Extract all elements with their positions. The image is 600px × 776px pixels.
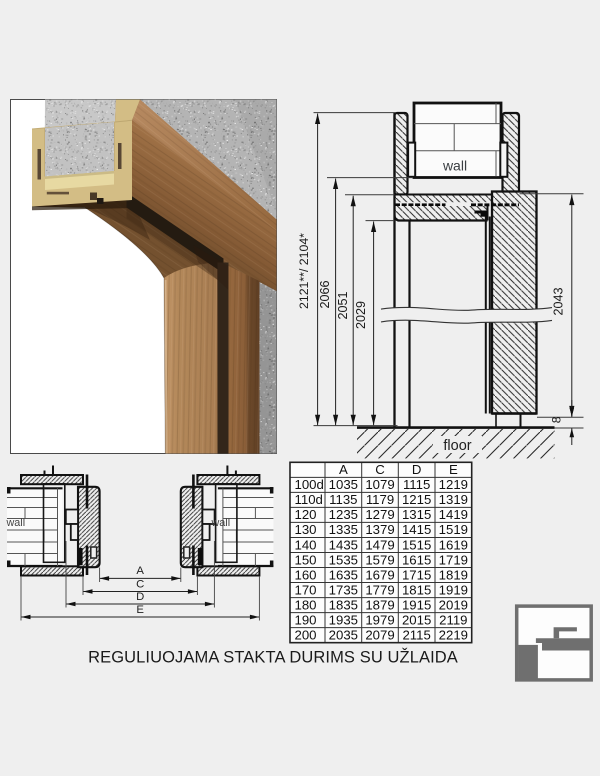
svg-text:1035: 1035 xyxy=(329,477,358,492)
svg-text:170: 170 xyxy=(295,582,317,597)
svg-text:120: 120 xyxy=(295,507,317,522)
svg-text:1735: 1735 xyxy=(329,582,358,597)
svg-text:180: 180 xyxy=(295,597,317,612)
svg-text:1835: 1835 xyxy=(329,597,358,612)
svg-text:2121**/ 2104*: 2121**/ 2104* xyxy=(297,233,311,309)
svg-text:D: D xyxy=(412,462,422,477)
svg-text:1779: 1779 xyxy=(365,582,394,597)
svg-text:2015: 2015 xyxy=(402,612,431,627)
svg-text:140: 140 xyxy=(295,537,317,552)
svg-text:E: E xyxy=(136,604,144,616)
svg-text:REGULIUOJAMA STAKTA DURIMS SU: REGULIUOJAMA STAKTA DURIMS SU UŽLAIDA xyxy=(88,648,458,667)
svg-text:1435: 1435 xyxy=(329,537,358,552)
svg-text:110d: 110d xyxy=(295,492,323,507)
svg-text:1515: 1515 xyxy=(402,537,431,552)
svg-text:8: 8 xyxy=(550,416,564,423)
svg-text:wall: wall xyxy=(211,517,231,529)
svg-text:2219: 2219 xyxy=(439,627,468,642)
svg-text:1079: 1079 xyxy=(365,477,394,492)
svg-text:1235: 1235 xyxy=(329,507,358,522)
svg-text:1315: 1315 xyxy=(402,507,431,522)
svg-text:1819: 1819 xyxy=(439,567,468,582)
svg-text:E: E xyxy=(449,462,458,477)
svg-text:160: 160 xyxy=(295,567,317,582)
svg-text:1715: 1715 xyxy=(402,567,431,582)
svg-text:150: 150 xyxy=(295,552,317,567)
svg-text:D: D xyxy=(136,591,144,603)
svg-text:2066: 2066 xyxy=(318,280,332,308)
svg-text:wall: wall xyxy=(6,517,26,529)
svg-text:1279: 1279 xyxy=(365,507,394,522)
svg-text:1815: 1815 xyxy=(402,582,431,597)
svg-text:100d: 100d xyxy=(295,477,324,492)
svg-text:2115: 2115 xyxy=(402,627,430,642)
svg-text:1419: 1419 xyxy=(439,507,468,522)
svg-text:190: 190 xyxy=(295,612,317,627)
svg-text:200: 200 xyxy=(295,627,317,642)
svg-text:2079: 2079 xyxy=(365,627,394,642)
svg-text:1135: 1135 xyxy=(329,492,357,507)
svg-text:C: C xyxy=(375,462,385,477)
svg-text:1415: 1415 xyxy=(402,522,431,537)
svg-text:1379: 1379 xyxy=(365,522,394,537)
svg-text:2119: 2119 xyxy=(439,612,467,627)
svg-text:1219: 1219 xyxy=(439,477,468,492)
svg-text:2051: 2051 xyxy=(336,291,350,319)
svg-text:1579: 1579 xyxy=(365,552,394,567)
svg-text:1115: 1115 xyxy=(403,477,430,492)
svg-text:1335: 1335 xyxy=(329,522,358,537)
svg-text:1719: 1719 xyxy=(439,552,468,567)
svg-text:2029: 2029 xyxy=(354,301,368,329)
svg-text:1919: 1919 xyxy=(439,582,468,597)
svg-text:2035: 2035 xyxy=(329,627,358,642)
svg-text:1535: 1535 xyxy=(329,552,358,567)
svg-text:1635: 1635 xyxy=(329,567,358,582)
svg-text:1879: 1879 xyxy=(365,597,394,612)
svg-text:A: A xyxy=(136,565,144,577)
svg-text:1179: 1179 xyxy=(366,492,394,507)
svg-text:1979: 1979 xyxy=(365,612,394,627)
svg-text:1619: 1619 xyxy=(439,537,468,552)
svg-text:floor: floor xyxy=(443,438,471,454)
svg-text:1479: 1479 xyxy=(365,537,394,552)
svg-text:1679: 1679 xyxy=(365,567,394,582)
svg-text:1319: 1319 xyxy=(439,492,468,507)
svg-text:C: C xyxy=(136,579,144,591)
svg-text:1519: 1519 xyxy=(439,522,468,537)
svg-text:1915: 1915 xyxy=(402,597,431,612)
svg-text:A: A xyxy=(339,462,348,477)
svg-text:1615: 1615 xyxy=(402,552,431,567)
svg-text:1215: 1215 xyxy=(402,492,431,507)
svg-text:130: 130 xyxy=(295,522,317,537)
svg-text:2019: 2019 xyxy=(439,597,468,612)
svg-text:wall: wall xyxy=(442,158,467,174)
svg-text:1935: 1935 xyxy=(329,612,358,627)
svg-text:2043: 2043 xyxy=(552,287,566,315)
